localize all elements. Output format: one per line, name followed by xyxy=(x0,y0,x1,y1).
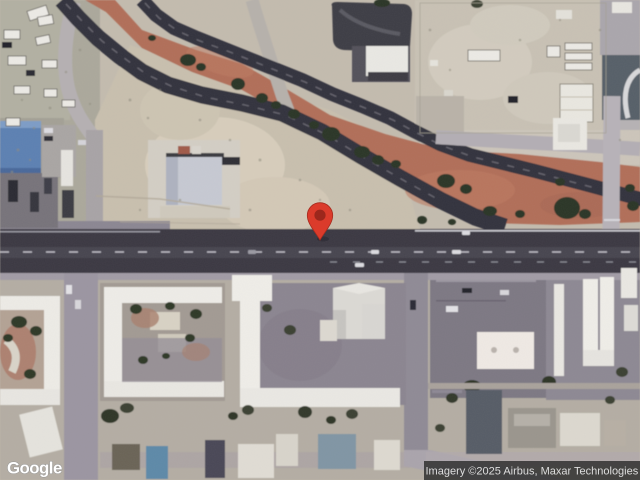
svg-text:Google: Google xyxy=(7,459,62,478)
svg-text:Imagery ©2025 Airbus, Maxar Te: Imagery ©2025 Airbus, Maxar Technologies xyxy=(426,466,639,478)
